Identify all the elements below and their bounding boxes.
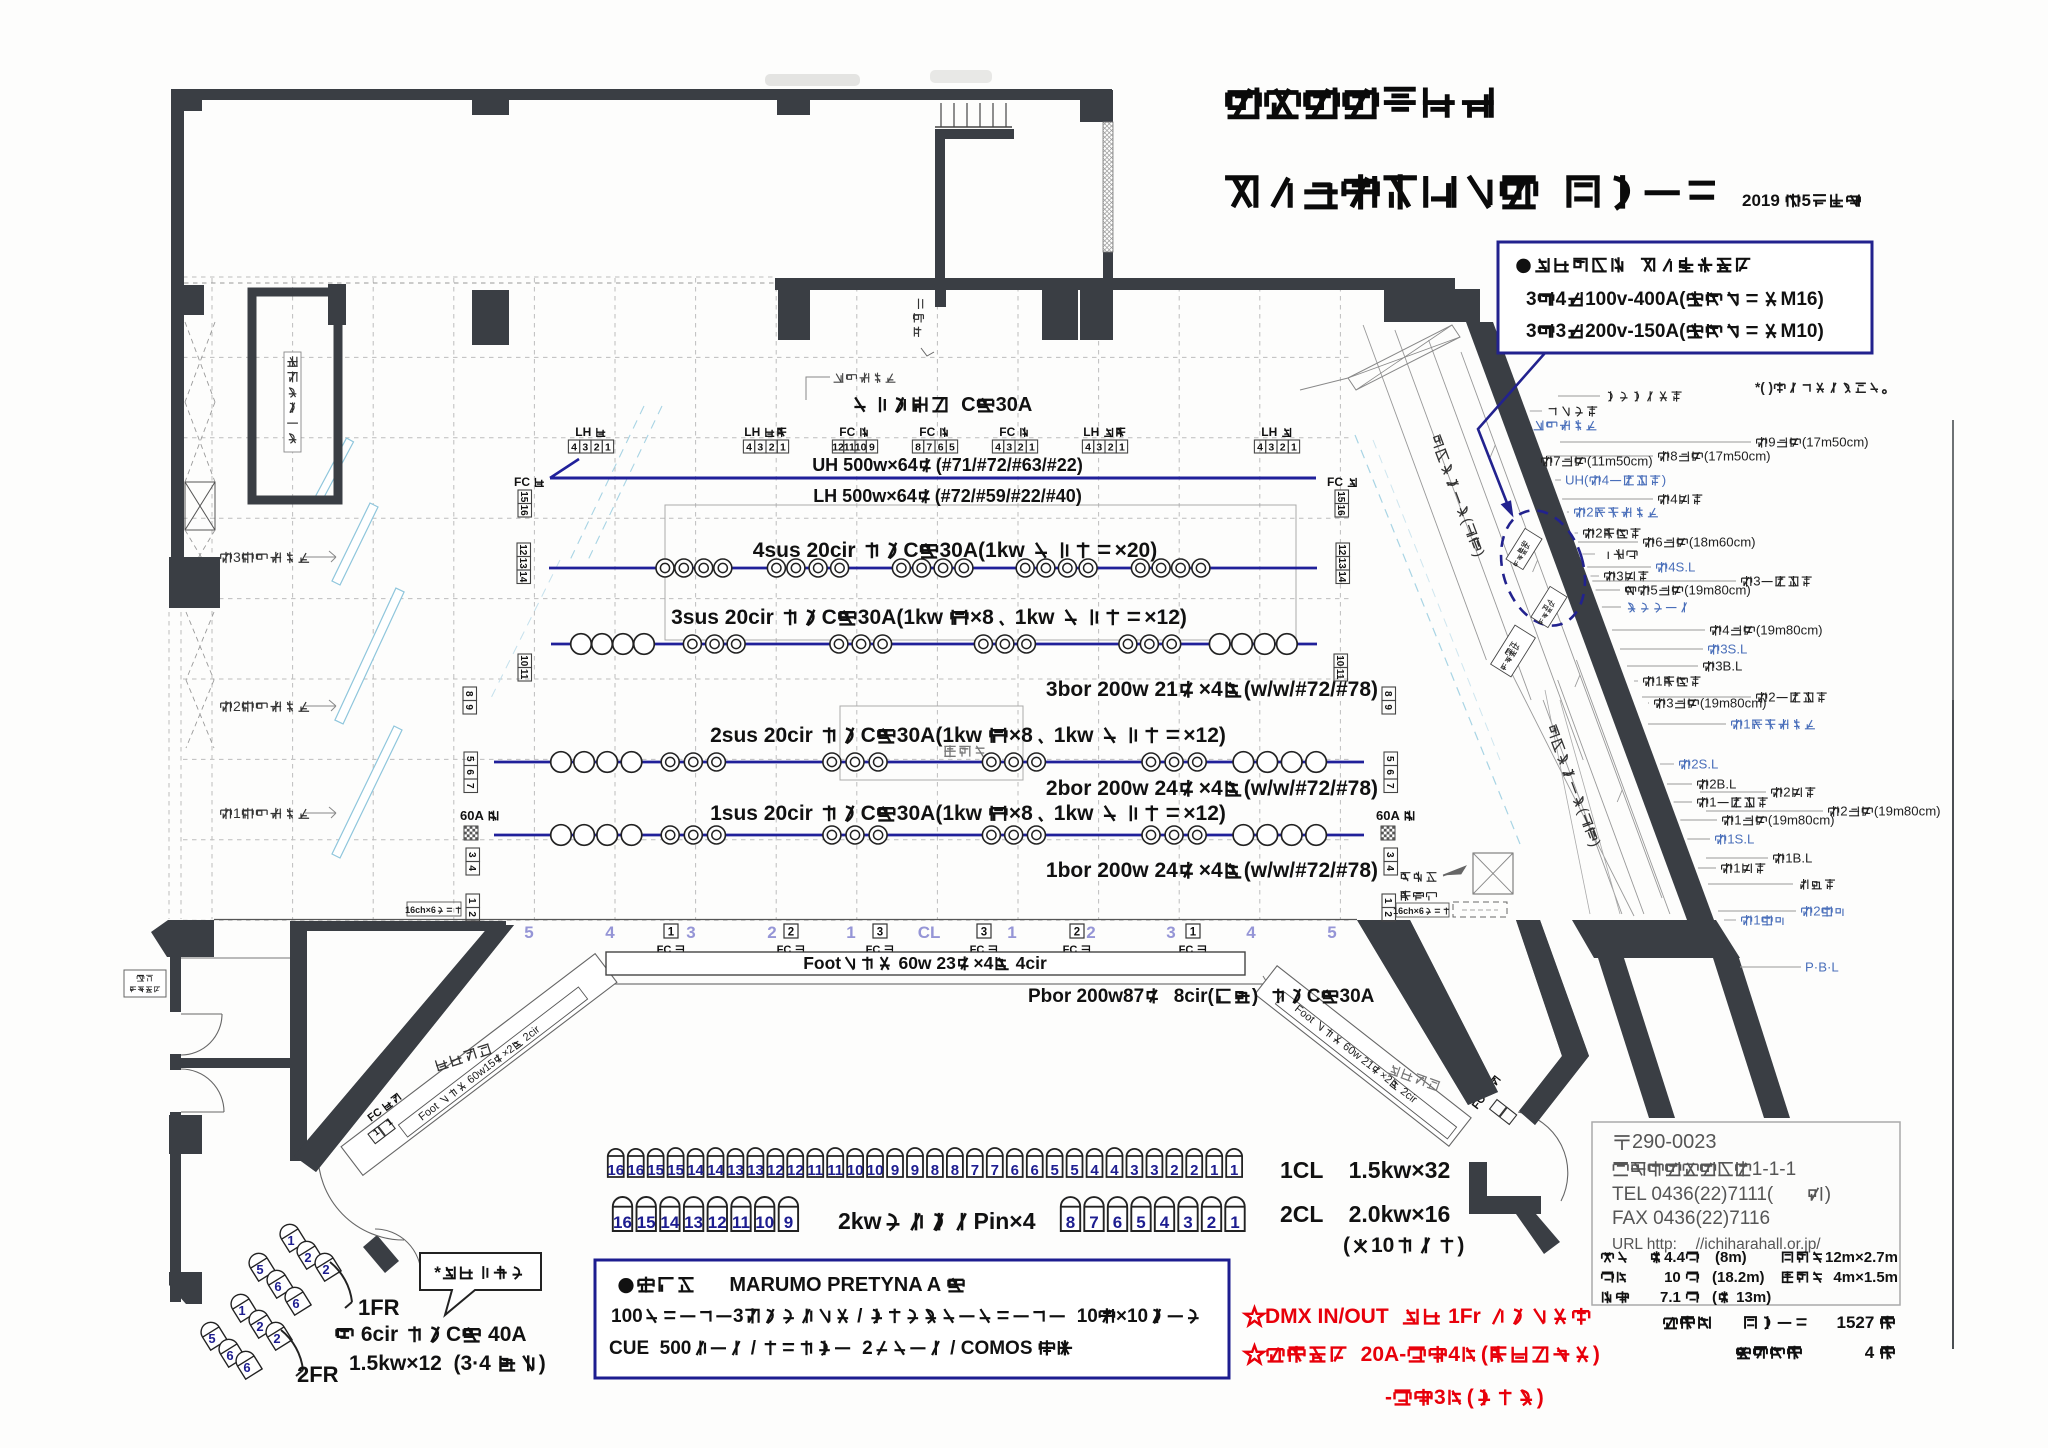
svg-text:1: 1 bbox=[1291, 442, 1297, 454]
svg-text:(w/w/#72/#78): (w/w/#72/#78) bbox=[1244, 859, 1378, 882]
svg-text:(: ( bbox=[1481, 1343, 1488, 1366]
svg-text:12: 12 bbox=[832, 442, 844, 454]
svg-text:5: 5 bbox=[524, 923, 533, 942]
svg-text:1: 1 bbox=[1382, 898, 1393, 904]
svg-text:(w/w/#72/#78): (w/w/#72/#78) bbox=[1244, 678, 1378, 701]
svg-text:15: 15 bbox=[518, 491, 529, 503]
svg-text:×12): ×12) bbox=[1144, 606, 1187, 629]
svg-text:6: 6 bbox=[464, 769, 475, 775]
svg-text:10: 10 bbox=[1066, 1306, 1098, 1327]
svg-text:(#72/#59/#22/#40): (#72/#59/#22/#40) bbox=[935, 486, 1082, 506]
svg-text:5: 5 bbox=[1136, 1213, 1145, 1232]
svg-text:2: 2 bbox=[1595, 526, 1602, 541]
svg-text:1-1-1: 1-1-1 bbox=[1752, 1159, 1796, 1180]
svg-text:5: 5 bbox=[1070, 1162, 1078, 1179]
svg-text:10: 10 bbox=[855, 442, 867, 454]
svg-text:12: 12 bbox=[708, 1213, 727, 1232]
svg-text:1: 1 bbox=[1007, 923, 1016, 942]
svg-text:FC: FC bbox=[919, 425, 938, 439]
svg-text:6: 6 bbox=[1384, 769, 1395, 775]
svg-text:×4: ×4 bbox=[1199, 859, 1223, 882]
svg-text:12: 12 bbox=[1336, 544, 1347, 556]
svg-text:1S.L: 1S.L bbox=[1727, 832, 1754, 847]
svg-text:1B.L: 1B.L bbox=[1785, 851, 1812, 866]
svg-text:/: / bbox=[852, 1306, 868, 1327]
svg-text:): ) bbox=[1825, 1184, 1831, 1205]
svg-text:13: 13 bbox=[517, 558, 528, 570]
svg-text:(18m60cm): (18m60cm) bbox=[1689, 535, 1756, 550]
svg-text:): ) bbox=[1593, 1343, 1600, 1366]
svg-text:×4: ×4 bbox=[1199, 678, 1223, 701]
svg-text:8: 8 bbox=[951, 1162, 959, 1179]
svg-text:1: 1 bbox=[1119, 442, 1125, 454]
svg-text:6: 6 bbox=[226, 1348, 233, 1363]
svg-text:CUE 500: CUE 500 bbox=[609, 1338, 691, 1359]
svg-text:1bor 200w 24: 1bor 200w 24 bbox=[1046, 859, 1178, 882]
svg-text:Foot: Foot bbox=[803, 953, 841, 973]
svg-text:(19m80cm): (19m80cm) bbox=[1874, 804, 1941, 819]
svg-text:20A-: 20A- bbox=[1349, 1343, 1406, 1366]
svg-text:3: 3 bbox=[1753, 574, 1760, 589]
svg-text:1: 1 bbox=[605, 442, 611, 454]
svg-text:TEL 0436(22)7111(: TEL 0436(22)7111( bbox=[1612, 1184, 1774, 1205]
svg-text:1: 1 bbox=[233, 805, 241, 821]
svg-text:9: 9 bbox=[869, 442, 875, 454]
svg-text:6: 6 bbox=[274, 1279, 281, 1294]
svg-text:P·B·L: P·B·L bbox=[1805, 960, 1839, 975]
svg-text:C: C bbox=[446, 1323, 461, 1346]
svg-text:3S.L: 3S.L bbox=[1720, 642, 1747, 657]
svg-text:7: 7 bbox=[464, 783, 475, 789]
svg-text:4: 4 bbox=[746, 442, 752, 454]
svg-text:4: 4 bbox=[1602, 473, 1609, 488]
svg-text:FAX 0436(22)7116: FAX 0436(22)7116 bbox=[1612, 1208, 1770, 1229]
svg-text:2: 2 bbox=[1840, 804, 1847, 819]
svg-text:1: 1 bbox=[1230, 1213, 1239, 1232]
svg-text:10: 10 bbox=[518, 655, 529, 667]
svg-text:(#71/#72/#63/#22): (#71/#72/#63/#22) bbox=[936, 455, 1083, 475]
svg-text:3: 3 bbox=[1434, 1386, 1446, 1409]
svg-text:1: 1 bbox=[846, 923, 855, 942]
svg-text:60A: 60A bbox=[1376, 808, 1403, 823]
svg-text:CL: CL bbox=[918, 923, 941, 942]
svg-text:12: 12 bbox=[517, 544, 528, 556]
svg-text:8: 8 bbox=[931, 1162, 939, 1179]
svg-text:5: 5 bbox=[256, 1262, 263, 1277]
svg-text:*( ): *( ) bbox=[1755, 380, 1773, 395]
svg-text:): ) bbox=[1457, 1234, 1464, 1257]
svg-text:3: 3 bbox=[1006, 442, 1012, 454]
svg-text:(8m): (8m) bbox=[1715, 1249, 1747, 1266]
svg-text:4: 4 bbox=[1556, 289, 1567, 310]
svg-text:/: / bbox=[746, 1338, 762, 1359]
svg-text:8: 8 bbox=[1670, 449, 1677, 464]
svg-text:30A: 30A bbox=[996, 394, 1033, 416]
svg-text:2: 2 bbox=[304, 1250, 311, 1265]
svg-text:100v-400A(: 100v-400A( bbox=[1585, 289, 1686, 310]
svg-text:10: 10 bbox=[867, 1162, 884, 1179]
svg-text:2: 2 bbox=[594, 442, 600, 454]
svg-text:30A(1kw: 30A(1kw bbox=[897, 724, 988, 747]
svg-text:UH 500w×64: UH 500w×64 bbox=[812, 455, 918, 475]
svg-text:3: 3 bbox=[1666, 696, 1673, 711]
svg-text:5: 5 bbox=[1802, 191, 1811, 210]
svg-text:6: 6 bbox=[1011, 1162, 1019, 1179]
svg-text:30A(1kw: 30A(1kw bbox=[897, 802, 988, 825]
svg-text:1FR: 1FR bbox=[358, 1295, 400, 1320]
svg-text:4.4: 4.4 bbox=[1664, 1249, 1686, 1266]
svg-text:2: 2 bbox=[1018, 442, 1024, 454]
svg-text:6: 6 bbox=[243, 1360, 250, 1375]
svg-text:3: 3 bbox=[233, 549, 241, 565]
svg-text:10: 10 bbox=[1334, 655, 1345, 667]
svg-text:2: 2 bbox=[1170, 1162, 1178, 1179]
svg-text:×20): ×20) bbox=[1115, 539, 1158, 562]
svg-text:3bor 200w 21: 3bor 200w 21 bbox=[1046, 678, 1178, 701]
svg-text:×8: ×8 bbox=[1009, 724, 1033, 747]
svg-text:3: 3 bbox=[1556, 321, 1567, 342]
svg-text:9: 9 bbox=[463, 704, 474, 710]
svg-text:5: 5 bbox=[1650, 583, 1657, 598]
svg-text:LH: LH bbox=[575, 425, 594, 439]
svg-text:11: 11 bbox=[1334, 669, 1345, 680]
svg-text:2: 2 bbox=[466, 911, 477, 917]
svg-text:MARUMO PRETYNA A: MARUMO PRETYNA A bbox=[696, 1274, 946, 1296]
svg-text:4: 4 bbox=[1670, 492, 1677, 507]
svg-text:1sus 20cir: 1sus 20cir bbox=[710, 802, 819, 825]
svg-text:2: 2 bbox=[852, 1338, 873, 1359]
svg-text:5: 5 bbox=[464, 756, 475, 762]
svg-text:14: 14 bbox=[1336, 571, 1347, 583]
svg-text:10: 10 bbox=[847, 1162, 864, 1179]
svg-text:3: 3 bbox=[1150, 1162, 1158, 1179]
svg-text:6cir: 6cir bbox=[355, 1323, 404, 1346]
svg-text:(19m80cm): (19m80cm) bbox=[1684, 583, 1751, 598]
svg-text:5: 5 bbox=[208, 1331, 215, 1346]
svg-text:LH 500w×64: LH 500w×64 bbox=[813, 486, 917, 506]
svg-text:(11m50cm): (11m50cm) bbox=[1587, 454, 1653, 469]
svg-text:(19m80cm): (19m80cm) bbox=[1768, 813, 1835, 828]
svg-text:11: 11 bbox=[807, 1162, 823, 1179]
svg-text:9: 9 bbox=[1382, 704, 1393, 710]
svg-text:9: 9 bbox=[784, 1213, 793, 1232]
svg-text:LH: LH bbox=[1083, 425, 1102, 439]
svg-text:8: 8 bbox=[915, 442, 921, 454]
svg-text:4: 4 bbox=[1384, 865, 1395, 871]
svg-text:1kw: 1kw bbox=[1015, 606, 1061, 629]
svg-text:2S.L: 2S.L bbox=[1691, 757, 1718, 772]
svg-text:2B.L: 2B.L bbox=[1709, 777, 1736, 792]
svg-text:3: 3 bbox=[1526, 321, 1537, 342]
svg-text:Pin×4: Pin×4 bbox=[974, 1208, 1036, 1234]
svg-text:2: 2 bbox=[1813, 904, 1820, 919]
svg-text:1527: 1527 bbox=[1837, 1313, 1880, 1332]
svg-text:2: 2 bbox=[1190, 1162, 1198, 1179]
svg-text:): ) bbox=[1537, 1386, 1544, 1409]
svg-text:8cir(: 8cir( bbox=[1163, 986, 1214, 1007]
svg-text:UH(: UH( bbox=[1565, 473, 1589, 488]
svg-text:15: 15 bbox=[647, 1162, 664, 1179]
svg-text:(: ( bbox=[1467, 1386, 1474, 1409]
svg-text:3: 3 bbox=[1268, 442, 1274, 454]
svg-text:1: 1 bbox=[1753, 913, 1760, 928]
svg-text:1: 1 bbox=[238, 1303, 245, 1318]
svg-text:5: 5 bbox=[1051, 1162, 1059, 1179]
svg-text:×12): ×12) bbox=[1183, 724, 1226, 747]
svg-text:7: 7 bbox=[1553, 454, 1560, 469]
svg-text:9: 9 bbox=[891, 1162, 899, 1179]
svg-text:2: 2 bbox=[767, 923, 776, 942]
svg-text:C: C bbox=[903, 539, 918, 562]
svg-text:60A: 60A bbox=[460, 808, 487, 823]
svg-text:*: * bbox=[434, 1263, 441, 1282]
svg-text:1kw: 1kw bbox=[1054, 802, 1100, 825]
svg-text:6: 6 bbox=[1031, 1162, 1039, 1179]
svg-text:6: 6 bbox=[1113, 1213, 1122, 1232]
svg-text:11: 11 bbox=[844, 442, 855, 454]
svg-text:2: 2 bbox=[322, 1262, 329, 1277]
svg-text:1: 1 bbox=[1190, 927, 1197, 939]
svg-text:200v-150A(: 200v-150A( bbox=[1585, 321, 1686, 342]
svg-text:): ) bbox=[1252, 986, 1269, 1007]
svg-text:2: 2 bbox=[1074, 927, 1080, 939]
svg-text:13m): 13m) bbox=[1732, 1289, 1771, 1306]
svg-text:3B.L: 3B.L bbox=[1715, 659, 1742, 674]
svg-text:12m×2.7m: 12m×2.7m bbox=[1825, 1249, 1898, 1266]
svg-text:14: 14 bbox=[517, 571, 528, 583]
svg-text:3: 3 bbox=[1130, 1162, 1138, 1179]
svg-text:4: 4 bbox=[466, 865, 477, 871]
svg-text:16ch×6: 16ch×6 bbox=[405, 905, 436, 915]
svg-text:2: 2 bbox=[788, 927, 794, 939]
svg-text:14: 14 bbox=[660, 1213, 679, 1232]
svg-text:Pbor 200w87: Pbor 200w87 bbox=[1028, 986, 1144, 1007]
svg-text:(19m80cm): (19m80cm) bbox=[1756, 623, 1823, 638]
svg-text:4cir: 4cir bbox=[1011, 953, 1047, 973]
svg-text:2: 2 bbox=[1280, 442, 1286, 454]
svg-text:1: 1 bbox=[1029, 442, 1035, 454]
svg-text:2sus 20cir: 2sus 20cir bbox=[710, 724, 819, 747]
svg-text:1CL 1.5kw×32: 1CL 1.5kw×32 bbox=[1280, 1157, 1450, 1183]
svg-text:FC: FC bbox=[514, 475, 533, 489]
svg-text:13: 13 bbox=[747, 1162, 764, 1179]
svg-text:8: 8 bbox=[1382, 691, 1393, 697]
svg-text:30A: 30A bbox=[1340, 986, 1375, 1007]
svg-text:1Fr: 1Fr bbox=[1442, 1305, 1486, 1328]
svg-text:(18.2m): (18.2m) bbox=[1712, 1269, 1765, 1286]
svg-text:×4: ×4 bbox=[1199, 777, 1223, 800]
svg-text:2: 2 bbox=[1382, 911, 1393, 917]
svg-text:14: 14 bbox=[687, 1162, 704, 1179]
svg-text:11: 11 bbox=[732, 1213, 750, 1232]
svg-text:10: 10 bbox=[755, 1213, 774, 1232]
svg-text:M10): M10) bbox=[1781, 321, 1824, 342]
svg-text:11: 11 bbox=[827, 1162, 843, 1179]
svg-text:16: 16 bbox=[613, 1213, 632, 1232]
svg-text:30A(1kw: 30A(1kw bbox=[940, 539, 1031, 562]
svg-text:30A(1kw: 30A(1kw bbox=[858, 606, 949, 629]
svg-text:1: 1 bbox=[1733, 861, 1740, 876]
svg-text:8: 8 bbox=[463, 691, 474, 697]
svg-text:5: 5 bbox=[949, 442, 955, 454]
svg-text:(17m50cm): (17m50cm) bbox=[1704, 449, 1771, 464]
svg-text:2: 2 bbox=[1768, 690, 1775, 705]
svg-text:1: 1 bbox=[1210, 1162, 1218, 1179]
svg-text:16: 16 bbox=[627, 1162, 644, 1179]
svg-text:3: 3 bbox=[686, 923, 695, 942]
svg-text:290-0023: 290-0023 bbox=[1632, 1131, 1717, 1153]
svg-text:3: 3 bbox=[877, 927, 883, 939]
svg-text:×8: ×8 bbox=[1009, 802, 1033, 825]
svg-text:FC: FC bbox=[839, 425, 858, 439]
svg-text:4: 4 bbox=[605, 923, 615, 942]
svg-text:7: 7 bbox=[971, 1162, 979, 1179]
svg-text:6: 6 bbox=[1655, 535, 1662, 550]
svg-text:100: 100 bbox=[611, 1306, 643, 1327]
svg-text:1kw: 1kw bbox=[1054, 724, 1100, 747]
svg-text:14: 14 bbox=[707, 1162, 724, 1179]
svg-text:3: 3 bbox=[582, 442, 588, 454]
svg-text:1: 1 bbox=[668, 927, 675, 939]
svg-text:(: ( bbox=[1343, 1234, 1350, 1257]
svg-text:2: 2 bbox=[273, 1331, 280, 1346]
svg-text:(w/w/#72/#78): (w/w/#72/#78) bbox=[1244, 777, 1378, 800]
svg-text:13: 13 bbox=[727, 1162, 744, 1179]
svg-text:4: 4 bbox=[1448, 1343, 1460, 1366]
svg-text:16ch×6: 16ch×6 bbox=[1393, 906, 1424, 916]
svg-text:4: 4 bbox=[1110, 1162, 1119, 1179]
svg-text:10: 10 bbox=[1664, 1269, 1685, 1286]
svg-text:×12): ×12) bbox=[1183, 802, 1226, 825]
svg-text:C: C bbox=[861, 802, 876, 825]
svg-text:4: 4 bbox=[1246, 923, 1256, 942]
svg-text:3: 3 bbox=[1166, 923, 1175, 942]
svg-text:40A: 40A bbox=[482, 1323, 526, 1346]
svg-text:×10: ×10 bbox=[1116, 1306, 1148, 1327]
svg-text:2: 2 bbox=[1783, 785, 1790, 800]
svg-text:2: 2 bbox=[1108, 442, 1114, 454]
svg-text:FC: FC bbox=[1327, 475, 1346, 489]
svg-text:11: 11 bbox=[518, 669, 529, 680]
svg-text:3: 3 bbox=[733, 1306, 744, 1327]
svg-text:1: 1 bbox=[1709, 795, 1716, 810]
svg-text:1: 1 bbox=[1734, 813, 1741, 828]
svg-text:12: 12 bbox=[787, 1162, 804, 1179]
svg-text:LH: LH bbox=[744, 425, 763, 439]
svg-text:16: 16 bbox=[1335, 505, 1346, 517]
svg-text:1: 1 bbox=[287, 1233, 294, 1248]
svg-text:1: 1 bbox=[1743, 717, 1750, 732]
svg-text:12: 12 bbox=[767, 1162, 784, 1179]
svg-text:FC: FC bbox=[999, 425, 1018, 439]
svg-text:3: 3 bbox=[1183, 1213, 1192, 1232]
svg-text:4sus 20cir: 4sus 20cir bbox=[753, 539, 862, 562]
svg-text:3sus 20cir: 3sus 20cir bbox=[671, 606, 780, 629]
svg-text:×4: ×4 bbox=[973, 953, 993, 973]
svg-text:9: 9 bbox=[911, 1162, 919, 1179]
svg-text:13: 13 bbox=[684, 1213, 703, 1232]
svg-text:60w 23: 60w 23 bbox=[894, 953, 957, 973]
svg-text:4m×1.5m: 4m×1.5m bbox=[1833, 1269, 1898, 1286]
svg-text:3: 3 bbox=[1096, 442, 1102, 454]
svg-text:1: 1 bbox=[1230, 1162, 1238, 1179]
svg-text:7.1: 7.1 bbox=[1660, 1289, 1685, 1306]
svg-text:): ) bbox=[539, 1352, 546, 1375]
svg-text:3: 3 bbox=[757, 442, 763, 454]
svg-text:1: 1 bbox=[780, 442, 786, 454]
svg-text:7: 7 bbox=[1089, 1213, 1098, 1232]
svg-text:2: 2 bbox=[1086, 923, 1095, 942]
svg-text:6: 6 bbox=[292, 1296, 299, 1311]
svg-text:2: 2 bbox=[1586, 505, 1593, 520]
svg-text:1: 1 bbox=[466, 898, 477, 904]
svg-text:7: 7 bbox=[1384, 783, 1395, 789]
svg-text:2: 2 bbox=[233, 698, 241, 714]
svg-text:4: 4 bbox=[1865, 1343, 1879, 1362]
svg-text:2: 2 bbox=[1207, 1213, 1216, 1232]
svg-text:3: 3 bbox=[981, 927, 987, 939]
svg-text:8: 8 bbox=[1066, 1213, 1075, 1232]
svg-text:4: 4 bbox=[995, 442, 1001, 454]
svg-text:4S.L: 4S.L bbox=[1668, 560, 1695, 575]
svg-text:3: 3 bbox=[466, 852, 477, 858]
svg-text:10: 10 bbox=[1371, 1234, 1394, 1257]
svg-text:1: 1 bbox=[1655, 674, 1662, 689]
svg-text:/ COMOS: / COMOS bbox=[945, 1338, 1038, 1359]
svg-text:): ) bbox=[1662, 473, 1666, 488]
svg-text:C: C bbox=[950, 394, 976, 416]
svg-text:4: 4 bbox=[1090, 1162, 1099, 1179]
svg-text:15: 15 bbox=[1335, 491, 1346, 503]
svg-text:×8: ×8 bbox=[970, 606, 994, 629]
svg-text:DMX IN/OUT: DMX IN/OUT bbox=[1265, 1305, 1400, 1328]
svg-text:5: 5 bbox=[1327, 923, 1336, 942]
svg-text:(: ( bbox=[1712, 1289, 1717, 1306]
svg-text:(19m80cm): (19m80cm) bbox=[1700, 696, 1767, 711]
svg-text:16: 16 bbox=[607, 1162, 624, 1179]
svg-text:2FR: 2FR bbox=[297, 1362, 339, 1387]
svg-text:4: 4 bbox=[1160, 1213, 1170, 1232]
svg-text:2CL 2.0kw×16: 2CL 2.0kw×16 bbox=[1280, 1201, 1450, 1227]
svg-text:M16): M16) bbox=[1781, 289, 1824, 310]
svg-text:C: C bbox=[1307, 986, 1321, 1007]
svg-text:-: - bbox=[1385, 1386, 1392, 1409]
svg-text:15: 15 bbox=[637, 1213, 656, 1232]
svg-text:2: 2 bbox=[769, 442, 775, 454]
svg-text:2: 2 bbox=[256, 1319, 263, 1334]
svg-text:C: C bbox=[861, 724, 876, 747]
svg-text:9: 9 bbox=[1768, 435, 1775, 450]
svg-text:7: 7 bbox=[926, 442, 932, 454]
svg-text:LH: LH bbox=[1261, 425, 1280, 439]
svg-text:4: 4 bbox=[1085, 442, 1091, 454]
svg-text:2bor 200w 24: 2bor 200w 24 bbox=[1046, 777, 1178, 800]
svg-text:16: 16 bbox=[518, 505, 529, 517]
svg-text:4: 4 bbox=[1722, 623, 1729, 638]
svg-text:1.5kw×12 (3·4: 1.5kw×12 (3·4 bbox=[349, 1352, 497, 1375]
svg-text:5: 5 bbox=[1384, 756, 1395, 762]
svg-text:13: 13 bbox=[1336, 558, 1347, 570]
svg-text:3: 3 bbox=[1526, 289, 1537, 310]
svg-text:7: 7 bbox=[991, 1162, 999, 1179]
svg-text:(17m50cm): (17m50cm) bbox=[1802, 435, 1869, 450]
svg-text:2kw: 2kw bbox=[838, 1208, 882, 1234]
svg-text:6: 6 bbox=[938, 442, 944, 454]
svg-text:3: 3 bbox=[1384, 852, 1395, 858]
svg-text:15: 15 bbox=[667, 1162, 684, 1179]
svg-text:4: 4 bbox=[1257, 442, 1263, 454]
svg-text:4: 4 bbox=[571, 442, 577, 454]
